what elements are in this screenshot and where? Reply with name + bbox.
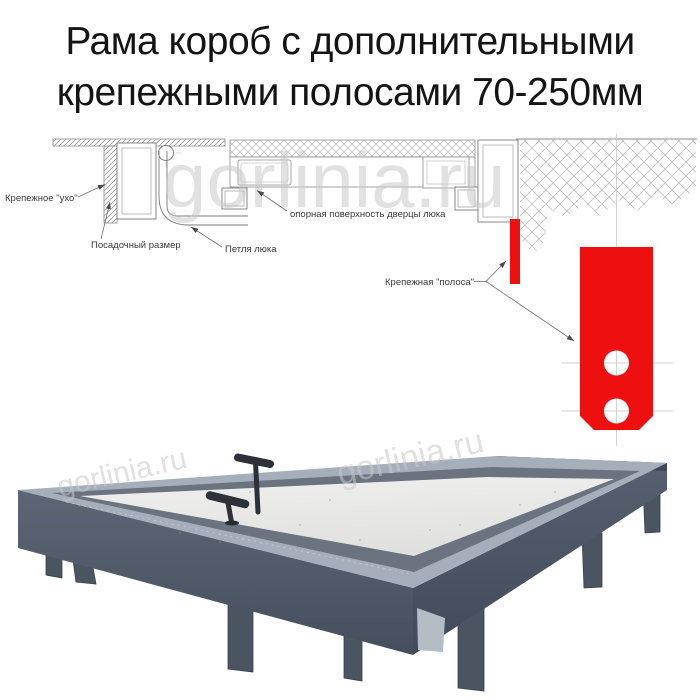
leader-strip-a [486,261,506,282]
label-mounting-ear: Крепежное "ухо" [5,193,78,204]
t-handle-front-foot [225,521,239,526]
product-photo: gorlinia.ru gorlinia.ru [0,430,700,700]
page-title: Рама короб с дополнительными крепежными … [0,16,700,118]
wall-hatch [520,140,696,253]
title-line-1: Рама короб с дополнительными [0,16,700,67]
title-line-2: крепежными полосами 70-250мм [0,67,700,118]
technical-diagram: gorlinia.ru Крепежное "ухо" Посадочный р… [0,120,700,452]
leg-front-a [228,600,253,672]
t-handle-front-stem [228,503,232,522]
label-hinge: Петля люка [225,244,277,255]
leader-hinge [191,227,222,247]
label-seat-size: Посадочный размер [91,240,181,251]
frame-profile-left [117,143,156,219]
t-handle-back-stem [256,462,259,512]
t-handle-back-bar [238,458,270,465]
mounting-ear [104,146,117,223]
leader-ear [78,185,105,198]
label-mounting-strip: Крепежная "полоса" [385,277,474,288]
mounting-strip-red [510,219,520,284]
label-support-surface: опорная поверхность дверцы люка [290,209,446,220]
leader-strip-b [486,282,574,342]
